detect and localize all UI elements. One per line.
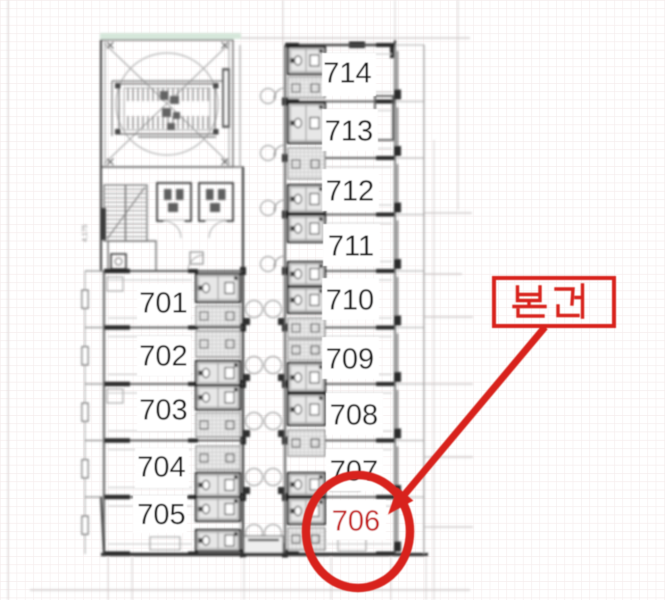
svg-text:713: 713 — [325, 115, 373, 147]
svg-text:714: 714 — [323, 57, 371, 89]
svg-text:4,175: 4,175 — [82, 224, 89, 242]
svg-text:710: 710 — [326, 284, 374, 316]
svg-text:712: 712 — [326, 175, 374, 207]
svg-text:704: 704 — [137, 451, 185, 483]
svg-text:703: 703 — [139, 394, 187, 426]
svg-text:708: 708 — [330, 399, 378, 431]
svg-text:701: 701 — [139, 287, 187, 319]
svg-text:709: 709 — [326, 343, 374, 375]
svg-text:705: 705 — [137, 499, 185, 531]
svg-text:706: 706 — [332, 505, 380, 537]
svg-text:702: 702 — [139, 340, 187, 372]
svg-text:711: 711 — [328, 230, 374, 262]
